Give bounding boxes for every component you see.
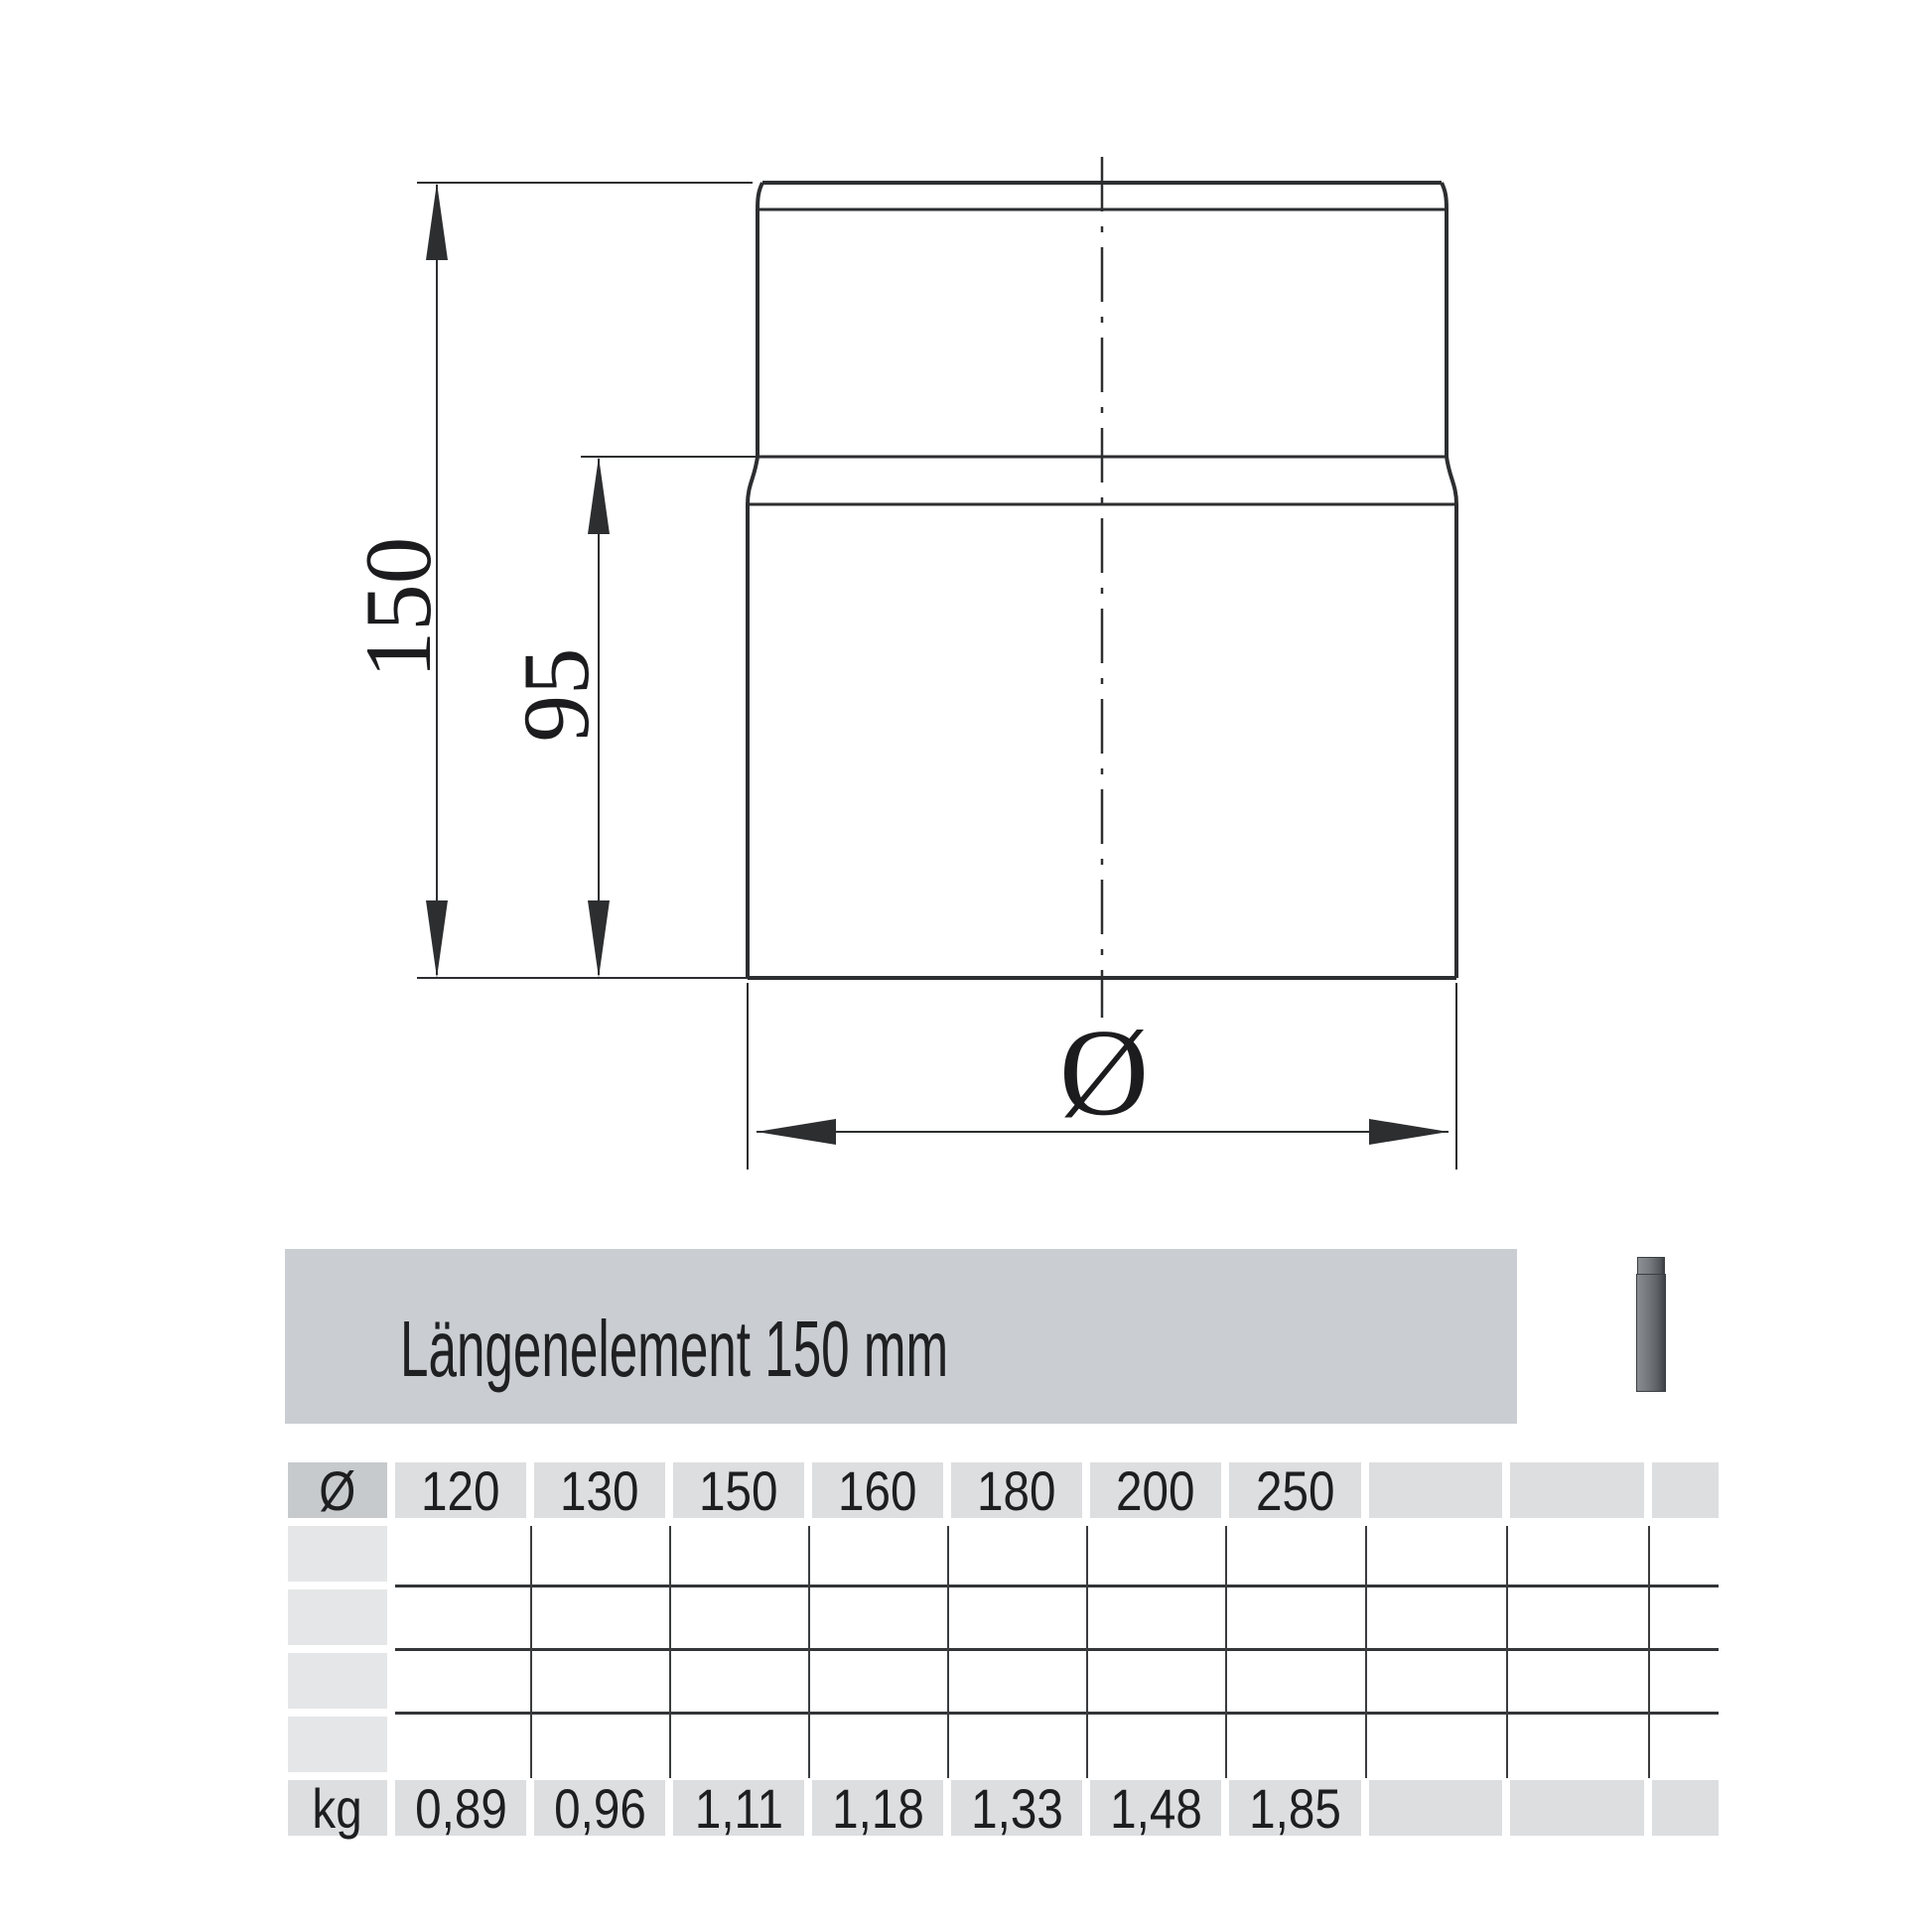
table-header-diameter: 200 [1090, 1462, 1221, 1518]
dim-label-95: 95 [503, 648, 609, 743]
thumbnail-pipe-body [1636, 1274, 1666, 1392]
table-header-diameter: 130 [534, 1462, 665, 1518]
table-weight-value: 1,33 [951, 1780, 1082, 1836]
table-header-diameter-symbol: Ø [288, 1462, 387, 1518]
table-header-empty [1369, 1462, 1502, 1518]
table-weight-empty [1652, 1780, 1719, 1836]
table-weight-value: 1,85 [1229, 1780, 1361, 1836]
table-grid-vline [1225, 1526, 1227, 1778]
table-grid-vline [669, 1526, 671, 1778]
table-grid-hline [395, 1712, 1719, 1715]
table-header-diameter: 180 [951, 1462, 1082, 1518]
table-row-label-empty [288, 1589, 387, 1645]
table-grid-hline [395, 1648, 1719, 1651]
table-weight-value: 1,18 [812, 1780, 943, 1836]
dim-label-150: 150 [345, 537, 451, 679]
table-header-diameter: 150 [673, 1462, 804, 1518]
table-header-diameter: 120 [395, 1462, 526, 1518]
table-weight-value: 1,11 [673, 1780, 804, 1836]
arrow-150-up [426, 183, 448, 260]
product-thumbnail [1636, 1257, 1666, 1392]
table-grid-vline [1365, 1526, 1367, 1778]
table-weight-value: 1,48 [1090, 1780, 1221, 1836]
product-title: Längenelement 150 mm [400, 1278, 948, 1395]
table-header-empty [1510, 1462, 1644, 1518]
table-grid-vline [1086, 1526, 1088, 1778]
table-grid-vline [1506, 1526, 1508, 1778]
spec-table: Ø 120 130 150 160 180 200 250 [288, 1462, 1719, 1840]
arrow-150-down [426, 900, 448, 978]
table-weight-unit: kg [288, 1780, 387, 1836]
table-grid-hline [395, 1585, 1719, 1587]
dim-label-diameter: Ø [1059, 1005, 1149, 1142]
table-header-empty [1652, 1462, 1719, 1518]
arrow-dia-right [1369, 1119, 1449, 1145]
table-weight-empty [1510, 1780, 1644, 1836]
product-title-bar: Längenelement 150 mm [285, 1249, 1517, 1424]
table-header-diameter: 160 [812, 1462, 943, 1518]
pipe-outline [748, 183, 1456, 978]
arrow-dia-left [757, 1119, 836, 1145]
table-grid-vline [947, 1526, 949, 1778]
table-weight-value: 0,89 [395, 1780, 526, 1836]
table-grid-vline [530, 1526, 532, 1778]
arrow-95-up [588, 457, 610, 534]
table-grid-vline [1648, 1526, 1650, 1778]
arrow-95-down [588, 900, 610, 978]
table-weight-value: 0,96 [534, 1780, 665, 1836]
table-row-label-empty [288, 1653, 387, 1709]
table-grid-vline [808, 1526, 810, 1778]
pipe-left-edge [748, 183, 762, 978]
table-weight-empty [1369, 1780, 1502, 1836]
table-row-label-empty [288, 1717, 387, 1772]
table-header-diameter: 250 [1229, 1462, 1361, 1518]
table-row-label-empty [288, 1526, 387, 1582]
pipe-right-edge [1442, 183, 1456, 978]
spec-sheet-page: 150 95 Ø Längenelement 150 mm Ø 120 130 … [0, 0, 1932, 1932]
